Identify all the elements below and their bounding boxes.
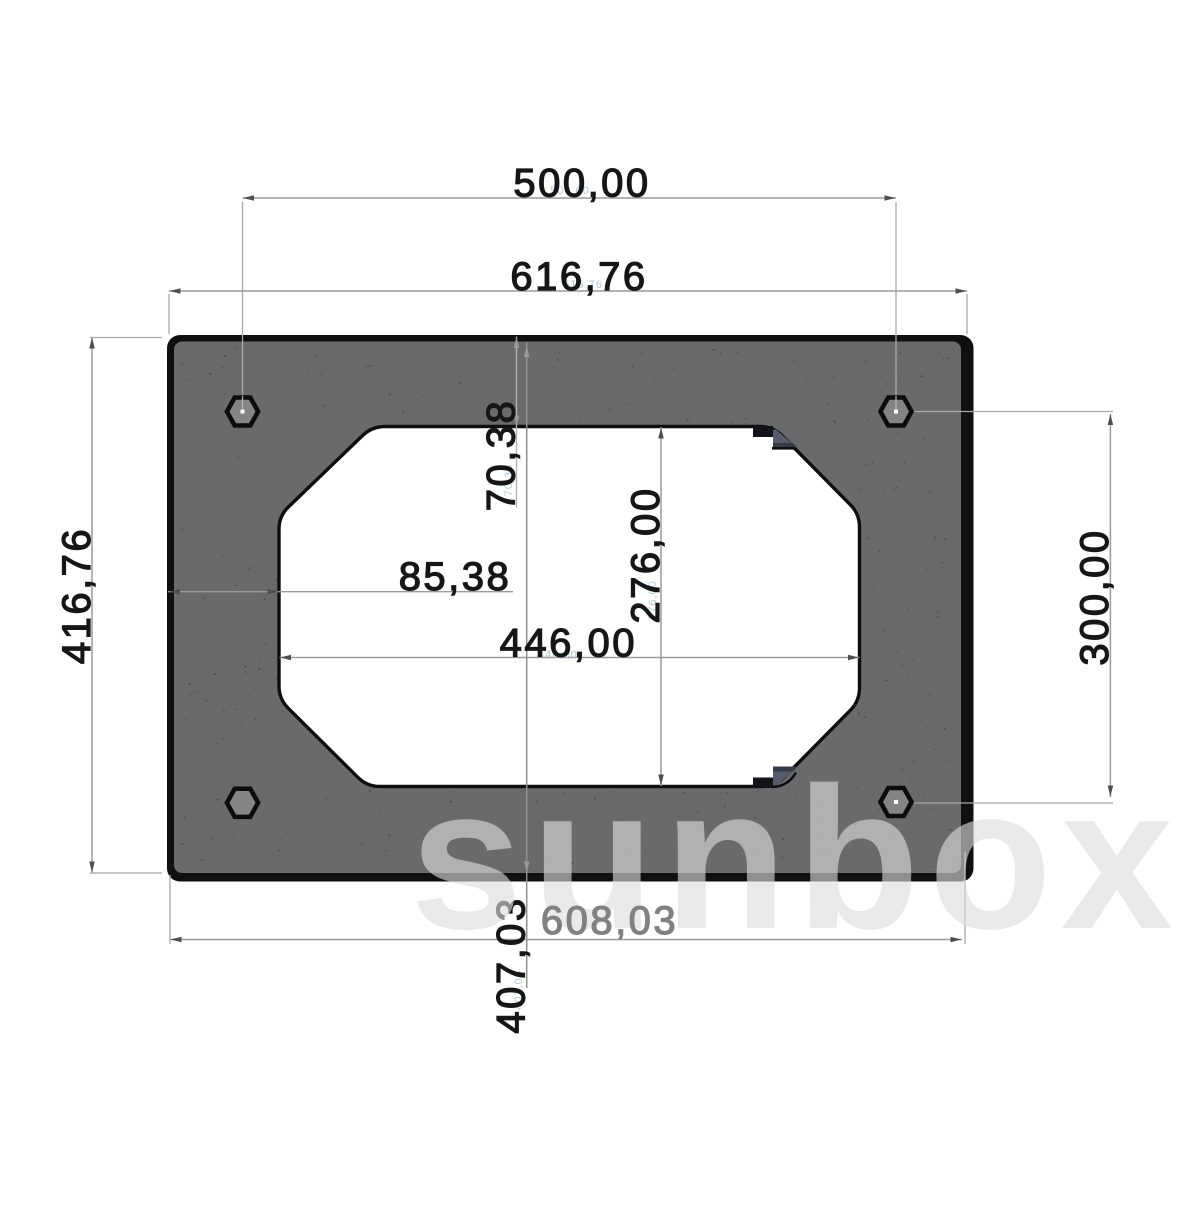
svg-text:608,03: 608,03: [541, 899, 678, 943]
svg-text:sunbox: sunbox: [410, 745, 1182, 971]
svg-text:446,00: 446,00: [500, 621, 637, 665]
svg-text:85,38: 85,38: [399, 555, 512, 599]
svg-text:500,00: 500,00: [513, 161, 650, 205]
svg-text:276,00: 276,00: [624, 486, 668, 623]
svg-text:300,00: 300,00: [1073, 528, 1117, 665]
svg-text:616,76: 616,76: [510, 255, 647, 299]
svg-text:70,38: 70,38: [480, 399, 524, 512]
svg-text:416,76: 416,76: [55, 527, 99, 664]
